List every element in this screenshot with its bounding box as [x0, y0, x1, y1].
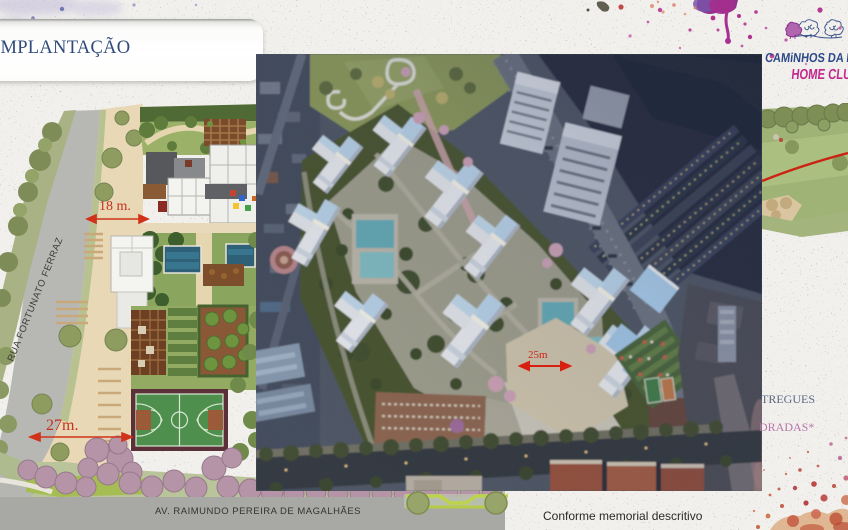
svg-text:18 m.: 18 m.: [99, 199, 131, 214]
svg-text:25m: 25m: [528, 349, 548, 361]
svg-text:HOME CLUB: HOME CLUB: [791, 67, 848, 83]
svg-text:27m.: 27m.: [46, 417, 78, 434]
svg-text:CAMiNHOS DA L: CAMiNHOS DA L: [764, 50, 848, 65]
